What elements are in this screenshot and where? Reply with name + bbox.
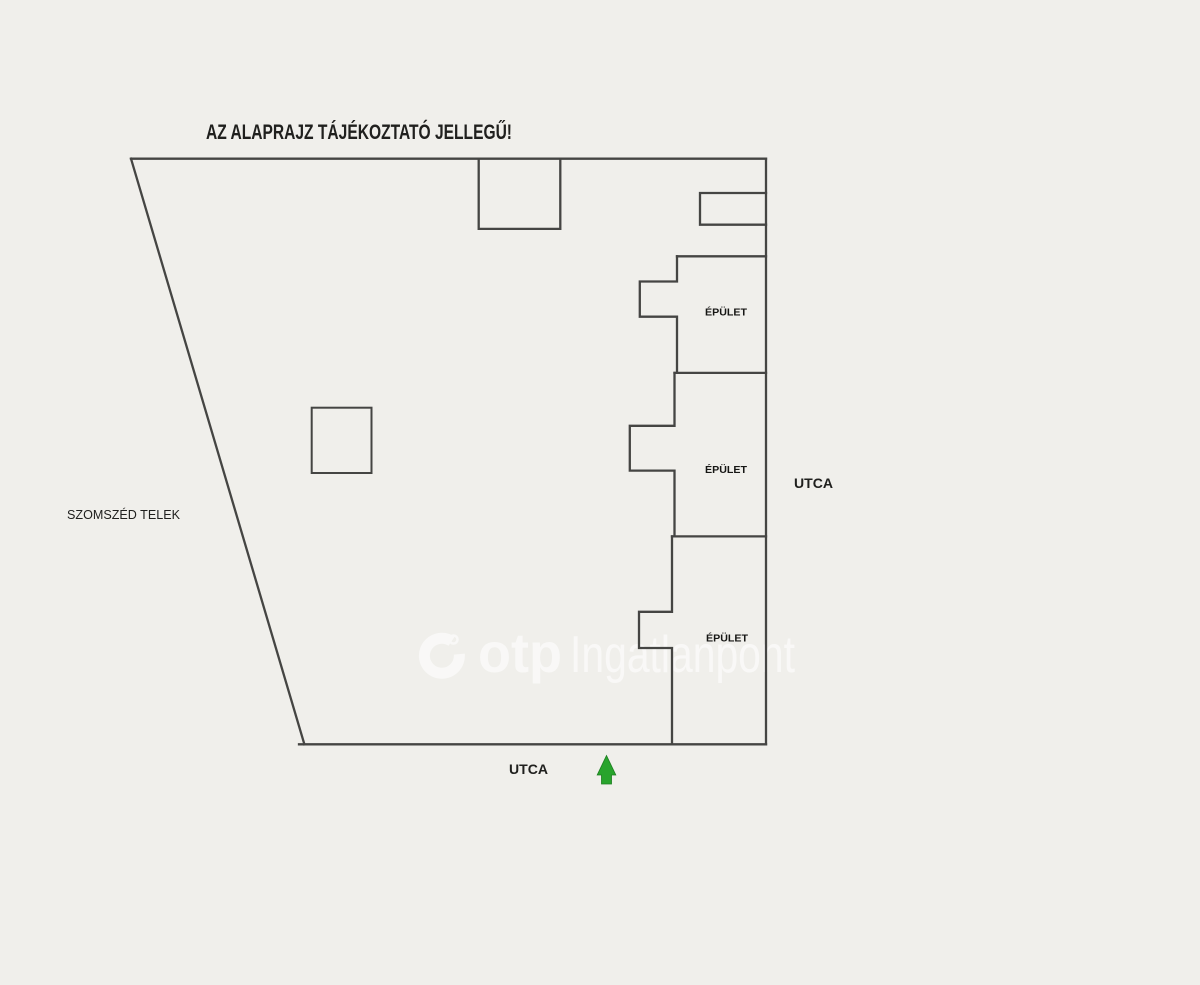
svg-text:otp: otp	[478, 621, 562, 684]
svg-text:ÉPÜLET: ÉPÜLET	[706, 632, 749, 645]
svg-text:AZ ALAPRAJZ TÁJÉKOZTATÓ JELLEG: AZ ALAPRAJZ TÁJÉKOZTATÓ JELLEGŰ!	[206, 120, 512, 144]
svg-text:SZOMSZÉD TELEK: SZOMSZÉD TELEK	[67, 507, 180, 522]
svg-text:ÉPÜLET: ÉPÜLET	[705, 306, 748, 319]
svg-text:UTCA: UTCA	[509, 761, 548, 777]
svg-text:UTCA: UTCA	[794, 475, 833, 491]
svg-text:Ingatlanpont: Ingatlanpont	[570, 626, 795, 684]
svg-text:ÉPÜLET: ÉPÜLET	[705, 463, 748, 476]
